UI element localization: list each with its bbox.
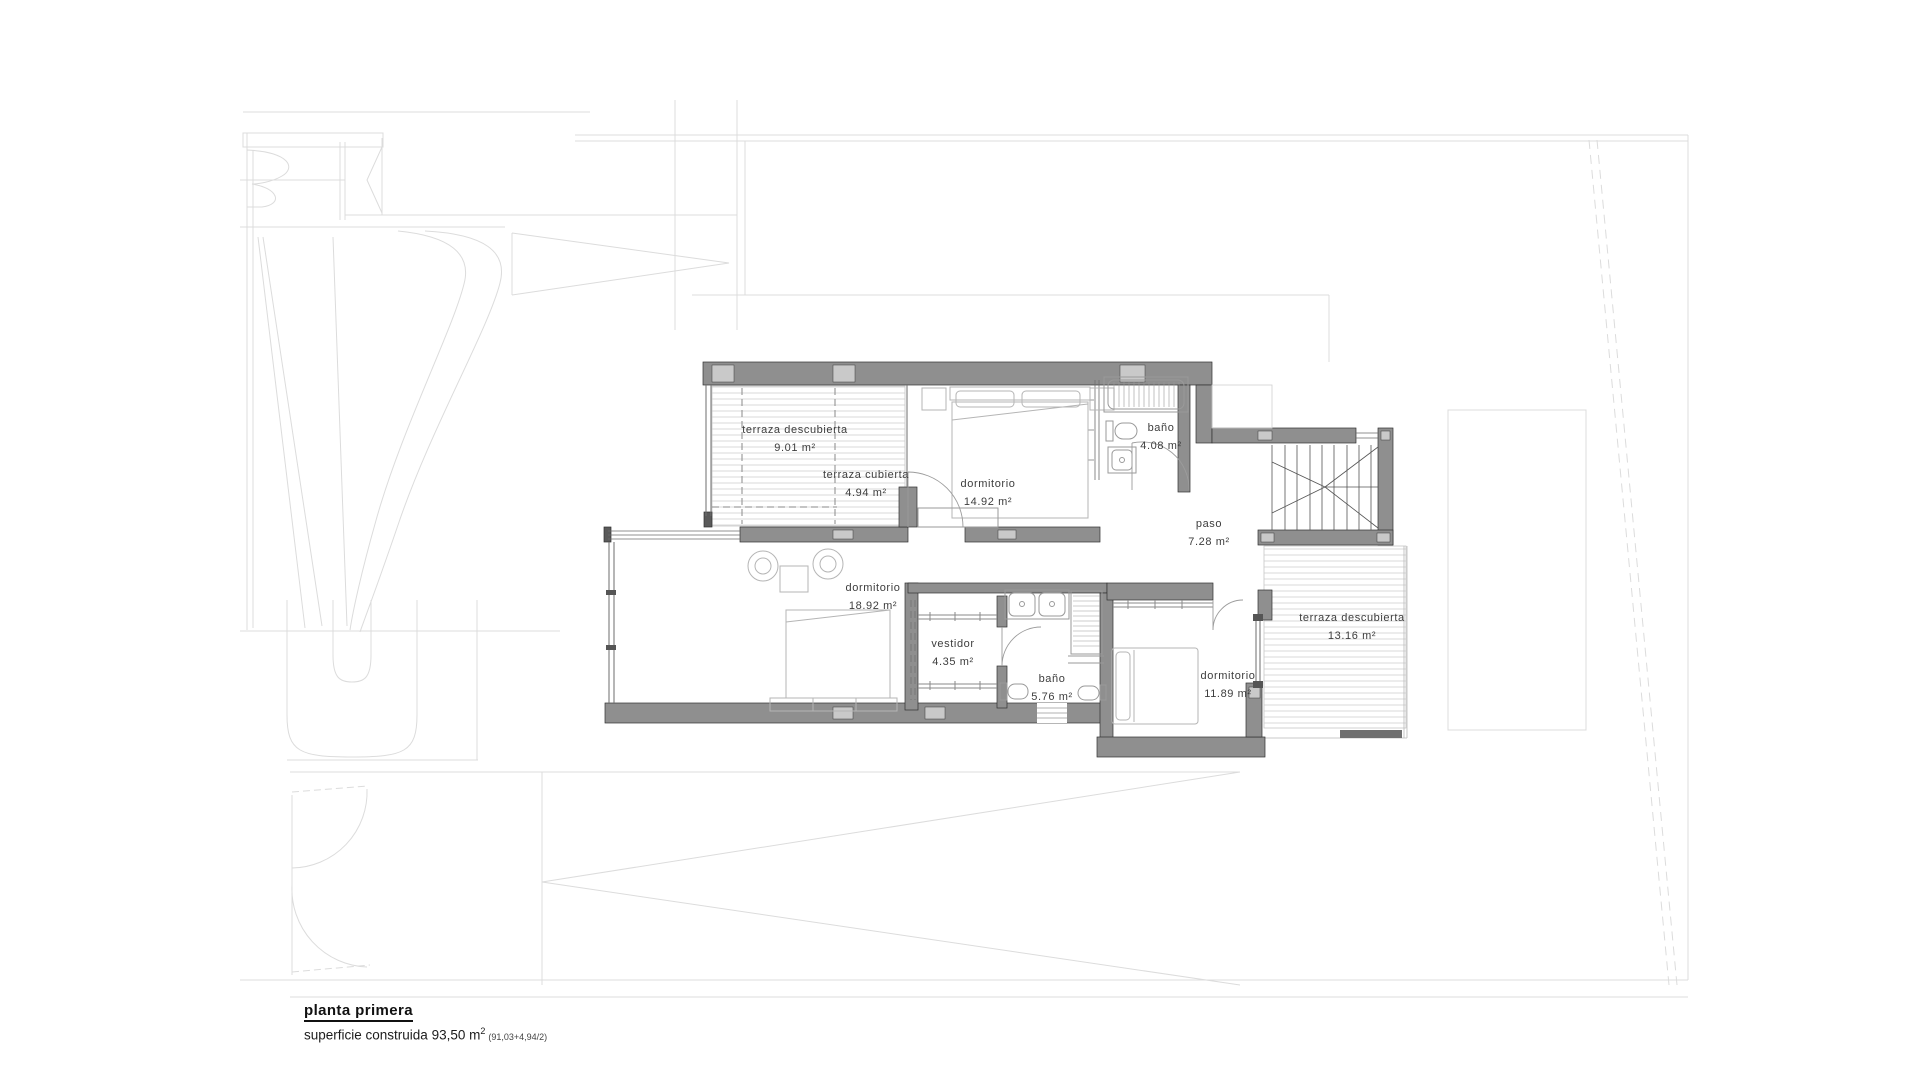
- room-label: dormitorio: [1201, 670, 1256, 682]
- site-plan: [240, 100, 1688, 997]
- room-area: 13.16 m²: [1328, 630, 1376, 642]
- room-area: 7.28 m²: [1188, 536, 1230, 548]
- floor-plan-page: terraza descubierta 9.01 m² terraza cubi…: [0, 0, 1920, 1080]
- wardrobe-rails: [918, 612, 997, 690]
- built-surface-note: (91,03+4,94/2): [488, 1032, 547, 1042]
- built-surface-sup: 2: [480, 1026, 485, 1036]
- armchairs: [748, 549, 843, 592]
- floor-plan-drawing: terraza descubierta 9.01 m² terraza cubi…: [0, 0, 1920, 1080]
- room-label: vestidor: [931, 638, 974, 650]
- staircase: [1272, 445, 1378, 530]
- doors: [908, 442, 1243, 666]
- room-label: baño: [1148, 422, 1175, 434]
- room-label: terraza descubierta: [742, 424, 848, 436]
- terrace-step: [1340, 730, 1402, 738]
- bathroom-1-fixtures: [1104, 377, 1188, 473]
- room-label: paso: [1196, 518, 1222, 530]
- room-area: 11.89 m²: [1204, 688, 1251, 700]
- bed-3: [1112, 600, 1213, 724]
- room-label: dormitorio: [961, 478, 1016, 490]
- room-label: terraza descubierta: [1299, 612, 1405, 624]
- room-area: 14.92 m²: [964, 496, 1012, 508]
- room-area: 5.76 m²: [1031, 691, 1073, 703]
- room-label: dormitorio: [846, 582, 901, 594]
- plan-title: planta primera: [304, 1002, 413, 1022]
- room-label: terraza cubierta: [823, 469, 909, 481]
- bed-1: [922, 387, 1114, 518]
- room-area: 18.92 m²: [849, 600, 897, 612]
- room-area: 4.08 m²: [1140, 440, 1182, 452]
- title-block: planta primera superficie construida 93,…: [304, 1002, 547, 1043]
- room-area: 4.94 m²: [845, 487, 887, 499]
- room-area: 4.35 m²: [932, 656, 974, 668]
- room-label: baño: [1039, 673, 1066, 685]
- built-surface-label: superficie construida 93,50 m: [304, 1028, 480, 1043]
- room-area: 9.01 m²: [774, 442, 816, 454]
- built-surface-line: superficie construida 93,50 m2(91,03+4,9…: [304, 1026, 547, 1043]
- bed-2: [770, 610, 897, 711]
